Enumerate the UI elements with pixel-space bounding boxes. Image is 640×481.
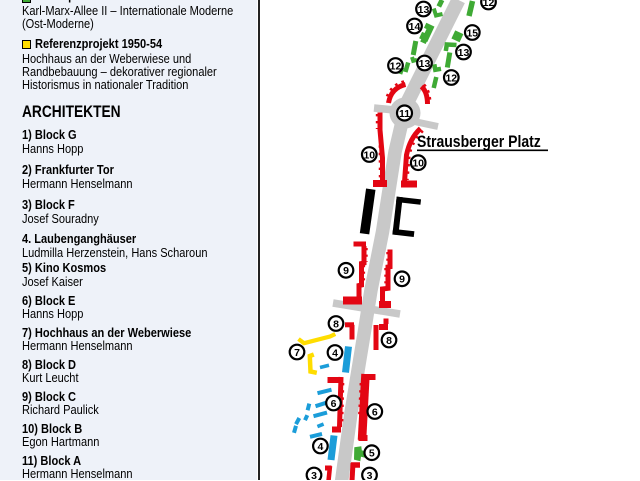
svg-text:6: 6 (372, 406, 378, 418)
svg-text:10: 10 (412, 158, 424, 170)
svg-text:4: 4 (332, 347, 338, 359)
svg-text:Strausberger Platz: Strausberger Platz (417, 133, 541, 151)
svg-text:13: 13 (458, 47, 470, 59)
svg-text:10: 10 (363, 149, 375, 161)
svg-text:6: 6 (331, 398, 337, 410)
svg-text:8: 8 (386, 335, 392, 347)
svg-text:3: 3 (311, 470, 317, 480)
svg-text:9: 9 (399, 274, 405, 286)
svg-text:9: 9 (343, 265, 349, 277)
svg-text:12: 12 (483, 0, 495, 9)
svg-text:12: 12 (445, 72, 457, 84)
svg-text:4: 4 (317, 441, 323, 453)
svg-text:15: 15 (466, 27, 478, 39)
svg-text:3: 3 (367, 470, 373, 480)
svg-text:8: 8 (333, 318, 339, 330)
svg-text:11: 11 (399, 108, 410, 120)
svg-text:14: 14 (409, 21, 421, 33)
svg-text:12: 12 (390, 60, 402, 72)
svg-text:13: 13 (418, 4, 430, 16)
svg-text:13: 13 (419, 58, 431, 70)
svg-text:5: 5 (369, 448, 375, 460)
svg-text:7: 7 (294, 347, 300, 359)
